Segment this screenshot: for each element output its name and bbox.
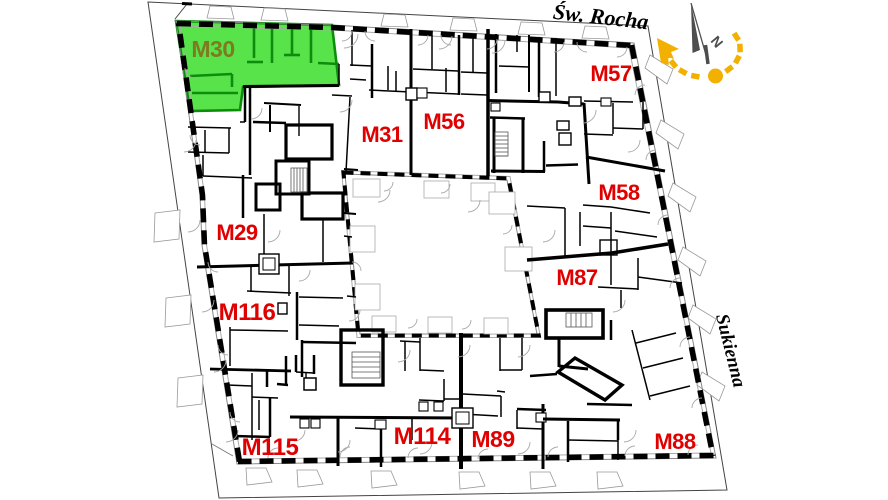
svg-text:M58: M58 [598,180,640,205]
svg-text:M56: M56 [423,109,465,134]
svg-text:M57: M57 [590,61,632,86]
svg-text:M116: M116 [219,299,276,326]
svg-text:M31: M31 [361,122,403,147]
svg-text:M29: M29 [216,220,258,245]
svg-text:M88: M88 [654,429,696,454]
svg-text:M87: M87 [556,265,598,290]
svg-text:M114: M114 [394,423,452,450]
svg-text:M30: M30 [191,36,234,62]
svg-text:M115: M115 [242,434,299,461]
svg-text:M89: M89 [471,426,514,452]
